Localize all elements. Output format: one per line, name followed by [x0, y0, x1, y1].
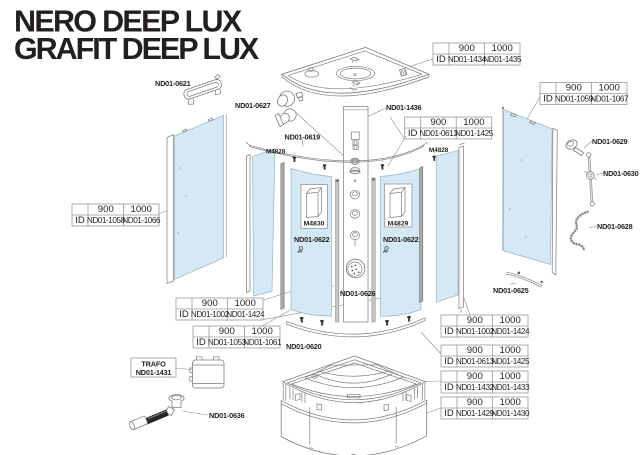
svg-text:ND01-0628: ND01-0628 [597, 222, 633, 231]
svg-text:ID: ID [444, 326, 454, 337]
svg-text:1000: 1000 [500, 345, 521, 356]
svg-text:ND01-1424: ND01-1424 [491, 327, 530, 336]
svg-text:ND01-1066: ND01-1066 [122, 216, 161, 225]
svg-text:1000: 1000 [599, 82, 620, 93]
svg-text:ND01-0630: ND01-0630 [603, 169, 639, 178]
svg-text:ID: ID [75, 215, 85, 226]
svg-text:ND01-1434: ND01-1434 [448, 55, 487, 64]
svg-text:ND01-0621: ND01-0621 [155, 79, 191, 88]
svg-text:ND01-0620: ND01-0620 [286, 342, 322, 351]
svg-text:ND01-0613: ND01-0613 [456, 357, 495, 366]
svg-text:M4828: M4828 [266, 149, 286, 156]
svg-text:ND01-1424: ND01-1424 [226, 310, 265, 319]
svg-text:1000: 1000 [252, 326, 273, 337]
svg-text:ND01-0625: ND01-0625 [493, 286, 529, 295]
svg-text:ND01-1002: ND01-1002 [191, 310, 230, 319]
svg-text:900: 900 [467, 371, 483, 382]
svg-text:ID: ID [543, 94, 553, 105]
svg-text:1000: 1000 [500, 371, 521, 382]
svg-text:900: 900 [98, 204, 114, 215]
svg-text:ND01-0629: ND01-0629 [592, 137, 628, 146]
svg-text:ND01-1059: ND01-1059 [555, 94, 594, 103]
svg-text:1000: 1000 [131, 204, 152, 215]
svg-text:ND01-1425: ND01-1425 [491, 357, 530, 366]
svg-text:ND01-1002: ND01-1002 [456, 327, 495, 336]
svg-text:ID: ID [408, 128, 418, 139]
svg-text:1000: 1000 [492, 43, 513, 54]
svg-text:ND01-1058: ND01-1058 [87, 216, 126, 225]
svg-text:ND01-1432: ND01-1432 [456, 383, 495, 392]
svg-text:ND01-1435: ND01-1435 [483, 55, 522, 64]
svg-text:1000: 1000 [500, 397, 521, 408]
svg-text:ND01-0626: ND01-0626 [340, 289, 376, 298]
svg-text:ID: ID [444, 356, 454, 367]
svg-text:900: 900 [566, 82, 582, 93]
svg-text:ND01-0627: ND01-0627 [235, 101, 271, 110]
svg-text:1000: 1000 [235, 298, 256, 309]
svg-text:ND01-0622: ND01-0622 [294, 235, 330, 244]
svg-text:M4830: M4830 [304, 221, 325, 228]
svg-text:900: 900 [202, 298, 218, 309]
svg-text:900: 900 [467, 345, 483, 356]
svg-text:ND01-1429: ND01-1429 [456, 409, 495, 418]
svg-text:M4828: M4828 [429, 147, 449, 154]
svg-text:1000: 1000 [500, 315, 521, 326]
svg-text:ND01-1425: ND01-1425 [455, 129, 494, 138]
svg-text:1000: 1000 [463, 117, 484, 128]
svg-text:ND01-1053: ND01-1053 [208, 338, 247, 347]
svg-text:ND01-0613: ND01-0613 [419, 129, 458, 138]
svg-text:ND01-1436: ND01-1436 [386, 103, 422, 112]
svg-text:ID: ID [436, 54, 446, 65]
svg-text:ID: ID [179, 309, 189, 320]
svg-text:ID: ID [444, 408, 454, 419]
svg-text:ND01-0619: ND01-0619 [285, 133, 321, 142]
svg-text:ND01-1430: ND01-1430 [491, 409, 530, 418]
svg-text:900: 900 [219, 326, 235, 337]
svg-text:M4829: M4829 [388, 221, 409, 228]
svg-text:ND01-1061: ND01-1061 [243, 338, 282, 347]
svg-text:900: 900 [430, 117, 446, 128]
svg-text:900: 900 [467, 397, 483, 408]
svg-text:ID: ID [444, 382, 454, 393]
svg-text:ND01-1431: ND01-1431 [136, 368, 172, 377]
svg-text:900: 900 [459, 43, 475, 54]
svg-text:ND01-1433: ND01-1433 [491, 383, 530, 392]
svg-text:GRAFIT DEEP LUX: GRAFIT DEEP LUX [14, 32, 260, 66]
svg-text:ND01-0622: ND01-0622 [383, 235, 419, 244]
svg-text:ND01-1067: ND01-1067 [590, 94, 629, 103]
svg-text:ID: ID [196, 337, 206, 348]
svg-text:ND01-0636: ND01-0636 [209, 411, 245, 420]
svg-text:900: 900 [467, 315, 483, 326]
